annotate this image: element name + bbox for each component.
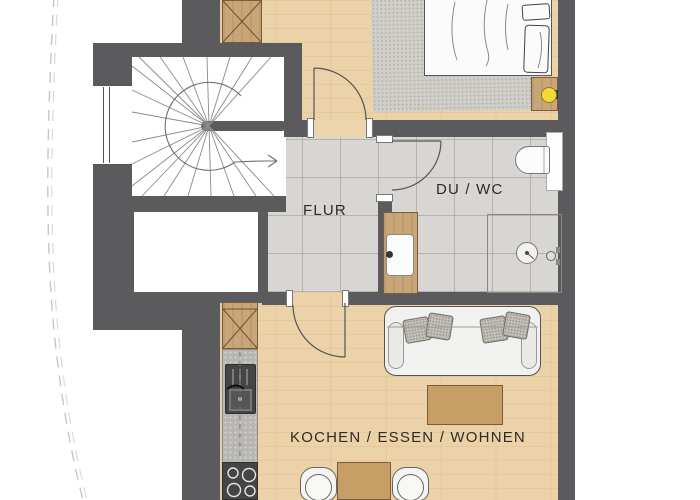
shower-fixture (546, 251, 556, 261)
sofa-pillow-4 (502, 311, 531, 340)
bed-pillow-bottom (523, 25, 550, 74)
stair-niche (134, 212, 258, 292)
label-kochen-essen-wohnen: KOCHEN / ESSEN / WOHNEN (290, 429, 526, 446)
label-du-wc: DU / WC (436, 181, 504, 198)
wall-southwest-band (93, 292, 182, 330)
wall-bedroom-south-r (366, 120, 575, 137)
shower-valve-bottom (556, 259, 560, 265)
sofa-pillow-2 (425, 312, 454, 341)
shower-drain-dot (525, 251, 529, 255)
floor-plan: FLUR DU / WC KOCHEN / ESSEN / WOHNEN (0, 0, 700, 500)
wall-left-lower (182, 292, 220, 500)
bath-door-jamb-top (376, 135, 393, 143)
chair-right-seat (397, 474, 424, 500)
shower-valve-top (556, 247, 560, 253)
bedroom-door-threshold (314, 120, 366, 137)
wall-stair-east (284, 57, 302, 121)
wall-niche-east (258, 212, 268, 292)
wardrobe-bedroom (222, 0, 262, 43)
wall-niche-left (93, 212, 134, 292)
wall-top-band (93, 43, 302, 57)
sink-drain-dot (238, 397, 242, 401)
stair-handrail (201, 121, 287, 131)
bedroom-door-jamb-right (366, 118, 373, 138)
toilet (515, 146, 550, 174)
chair-left-seat (305, 474, 332, 500)
bed-pillow-top (521, 3, 550, 21)
tall-cabinet-kitchen (222, 302, 258, 349)
label-flur: FLUR (303, 202, 347, 219)
living-door-jamb-left (286, 290, 293, 307)
wall-stair-south (93, 196, 286, 212)
dining-table (337, 462, 391, 500)
window-glazing (103, 87, 110, 163)
bedroom-door-jamb-left (307, 118, 314, 138)
washbasin-faucet (386, 251, 393, 258)
stove (222, 462, 258, 500)
bath-door-jamb-bottom (376, 194, 393, 202)
site-boundary-dashed-line (48, 0, 88, 500)
coffee-table (427, 385, 503, 425)
window (93, 85, 132, 165)
sofa-armrest-left (388, 322, 404, 369)
living-door-jamb-right (342, 290, 349, 307)
table-lamp (541, 87, 557, 103)
